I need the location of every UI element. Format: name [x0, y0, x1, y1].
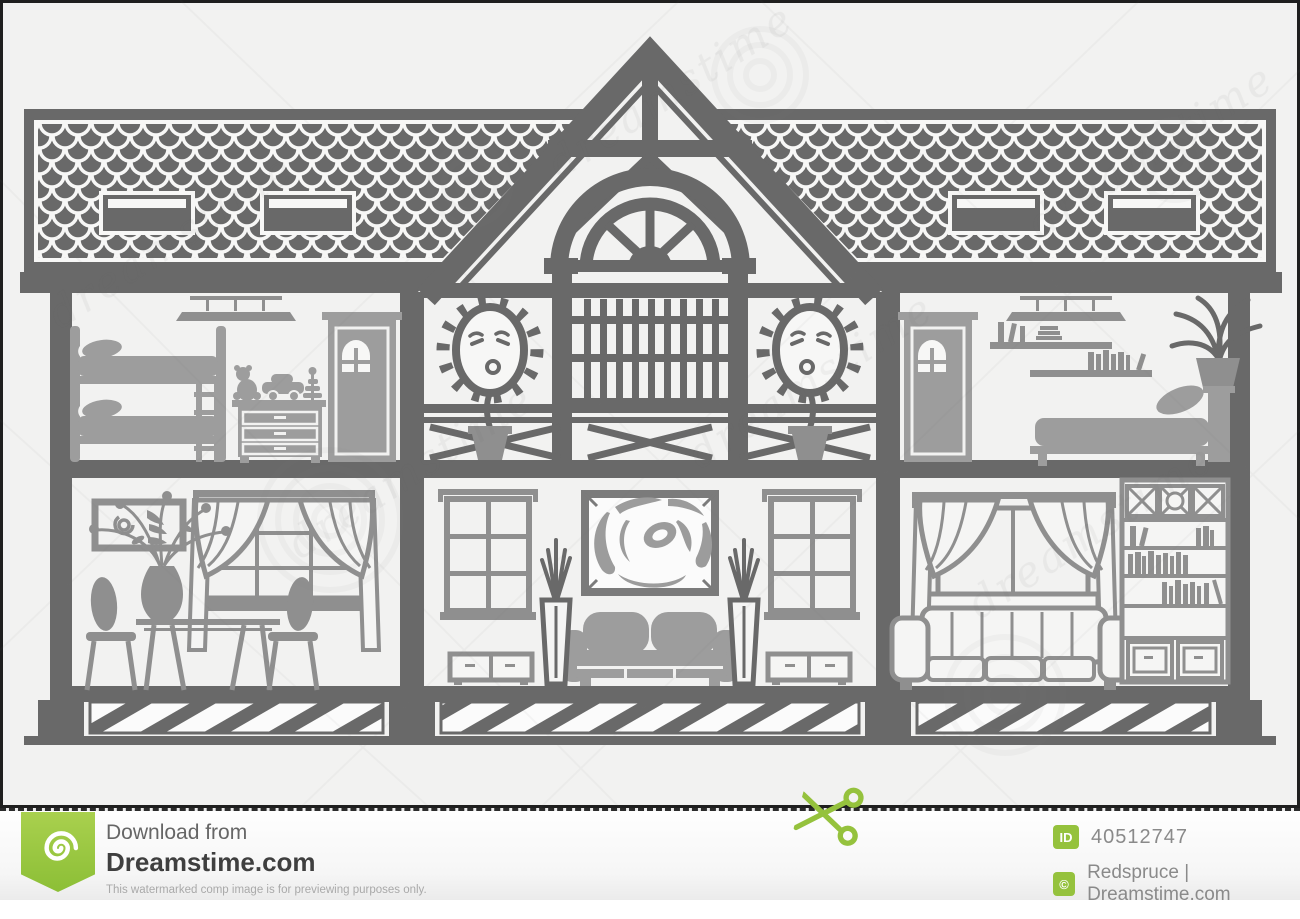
low-cabinet: [768, 654, 850, 685]
footing: [389, 700, 435, 737]
image-id: 40512747: [1091, 826, 1188, 849]
watermark-disclaimer: This watermarked comp image is for previ…: [106, 884, 427, 896]
wall: [1228, 292, 1250, 694]
footing: [38, 700, 84, 737]
foundation-hatch: [441, 702, 859, 733]
foundation-hatch: [90, 702, 383, 733]
download-from-label: Download from: [106, 821, 427, 845]
footing: [865, 700, 911, 737]
credit-row: © Redspruce | Dreamstime.com: [1053, 862, 1300, 906]
site-name: Dreamstime.com: [106, 847, 427, 878]
dreamstime-footer: Download from Dreamstime.com This waterm…: [0, 808, 1300, 900]
dreamstime-logo-ribbon: [21, 812, 95, 892]
author-credit: Redspruce | Dreamstime.com: [1087, 862, 1300, 906]
id-badge-icon: ID: [1053, 825, 1079, 849]
dreamstime-spiral-icon: [32, 822, 84, 874]
low-cabinet: [450, 654, 532, 685]
ground-line: [24, 736, 1276, 745]
middle-floor-slab: [50, 460, 1250, 478]
wall: [50, 292, 72, 694]
image-id-row: ID 40512747: [1053, 825, 1300, 849]
rose-picture: [585, 494, 715, 592]
arch-column: [552, 268, 572, 462]
house-cross-section-illustration: dreamstime dreamstime dreamstime dreamst…: [0, 0, 1300, 808]
copyright-badge-icon: ©: [1053, 872, 1075, 896]
door: [322, 312, 402, 462]
footing: [1216, 700, 1262, 737]
